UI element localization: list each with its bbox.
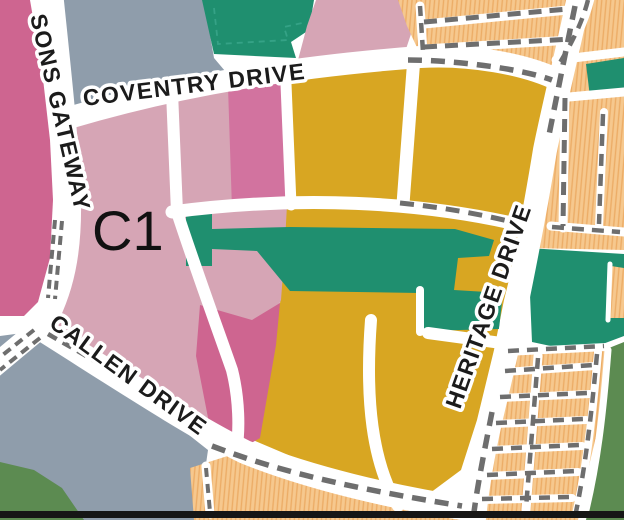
road-east-vertical-2: [599, 112, 604, 226]
road-west-vertical: [172, 92, 177, 212]
zone-label-c1: C1: [92, 199, 164, 262]
zoning-map-canvas[interactable]: SONS GATEWAY COVENTRY DRIVE CALLEN DRIVE…: [0, 0, 624, 520]
zoning-map[interactable]: SONS GATEWAY COVENTRY DRIVE CALLEN DRIVE…: [0, 0, 624, 520]
map-frame-bottom: [0, 511, 624, 518]
dash-ne-vertical: [420, 6, 423, 52]
road-notch-edge: [608, 264, 610, 320]
road-gold-upper-west: [286, 84, 291, 205]
